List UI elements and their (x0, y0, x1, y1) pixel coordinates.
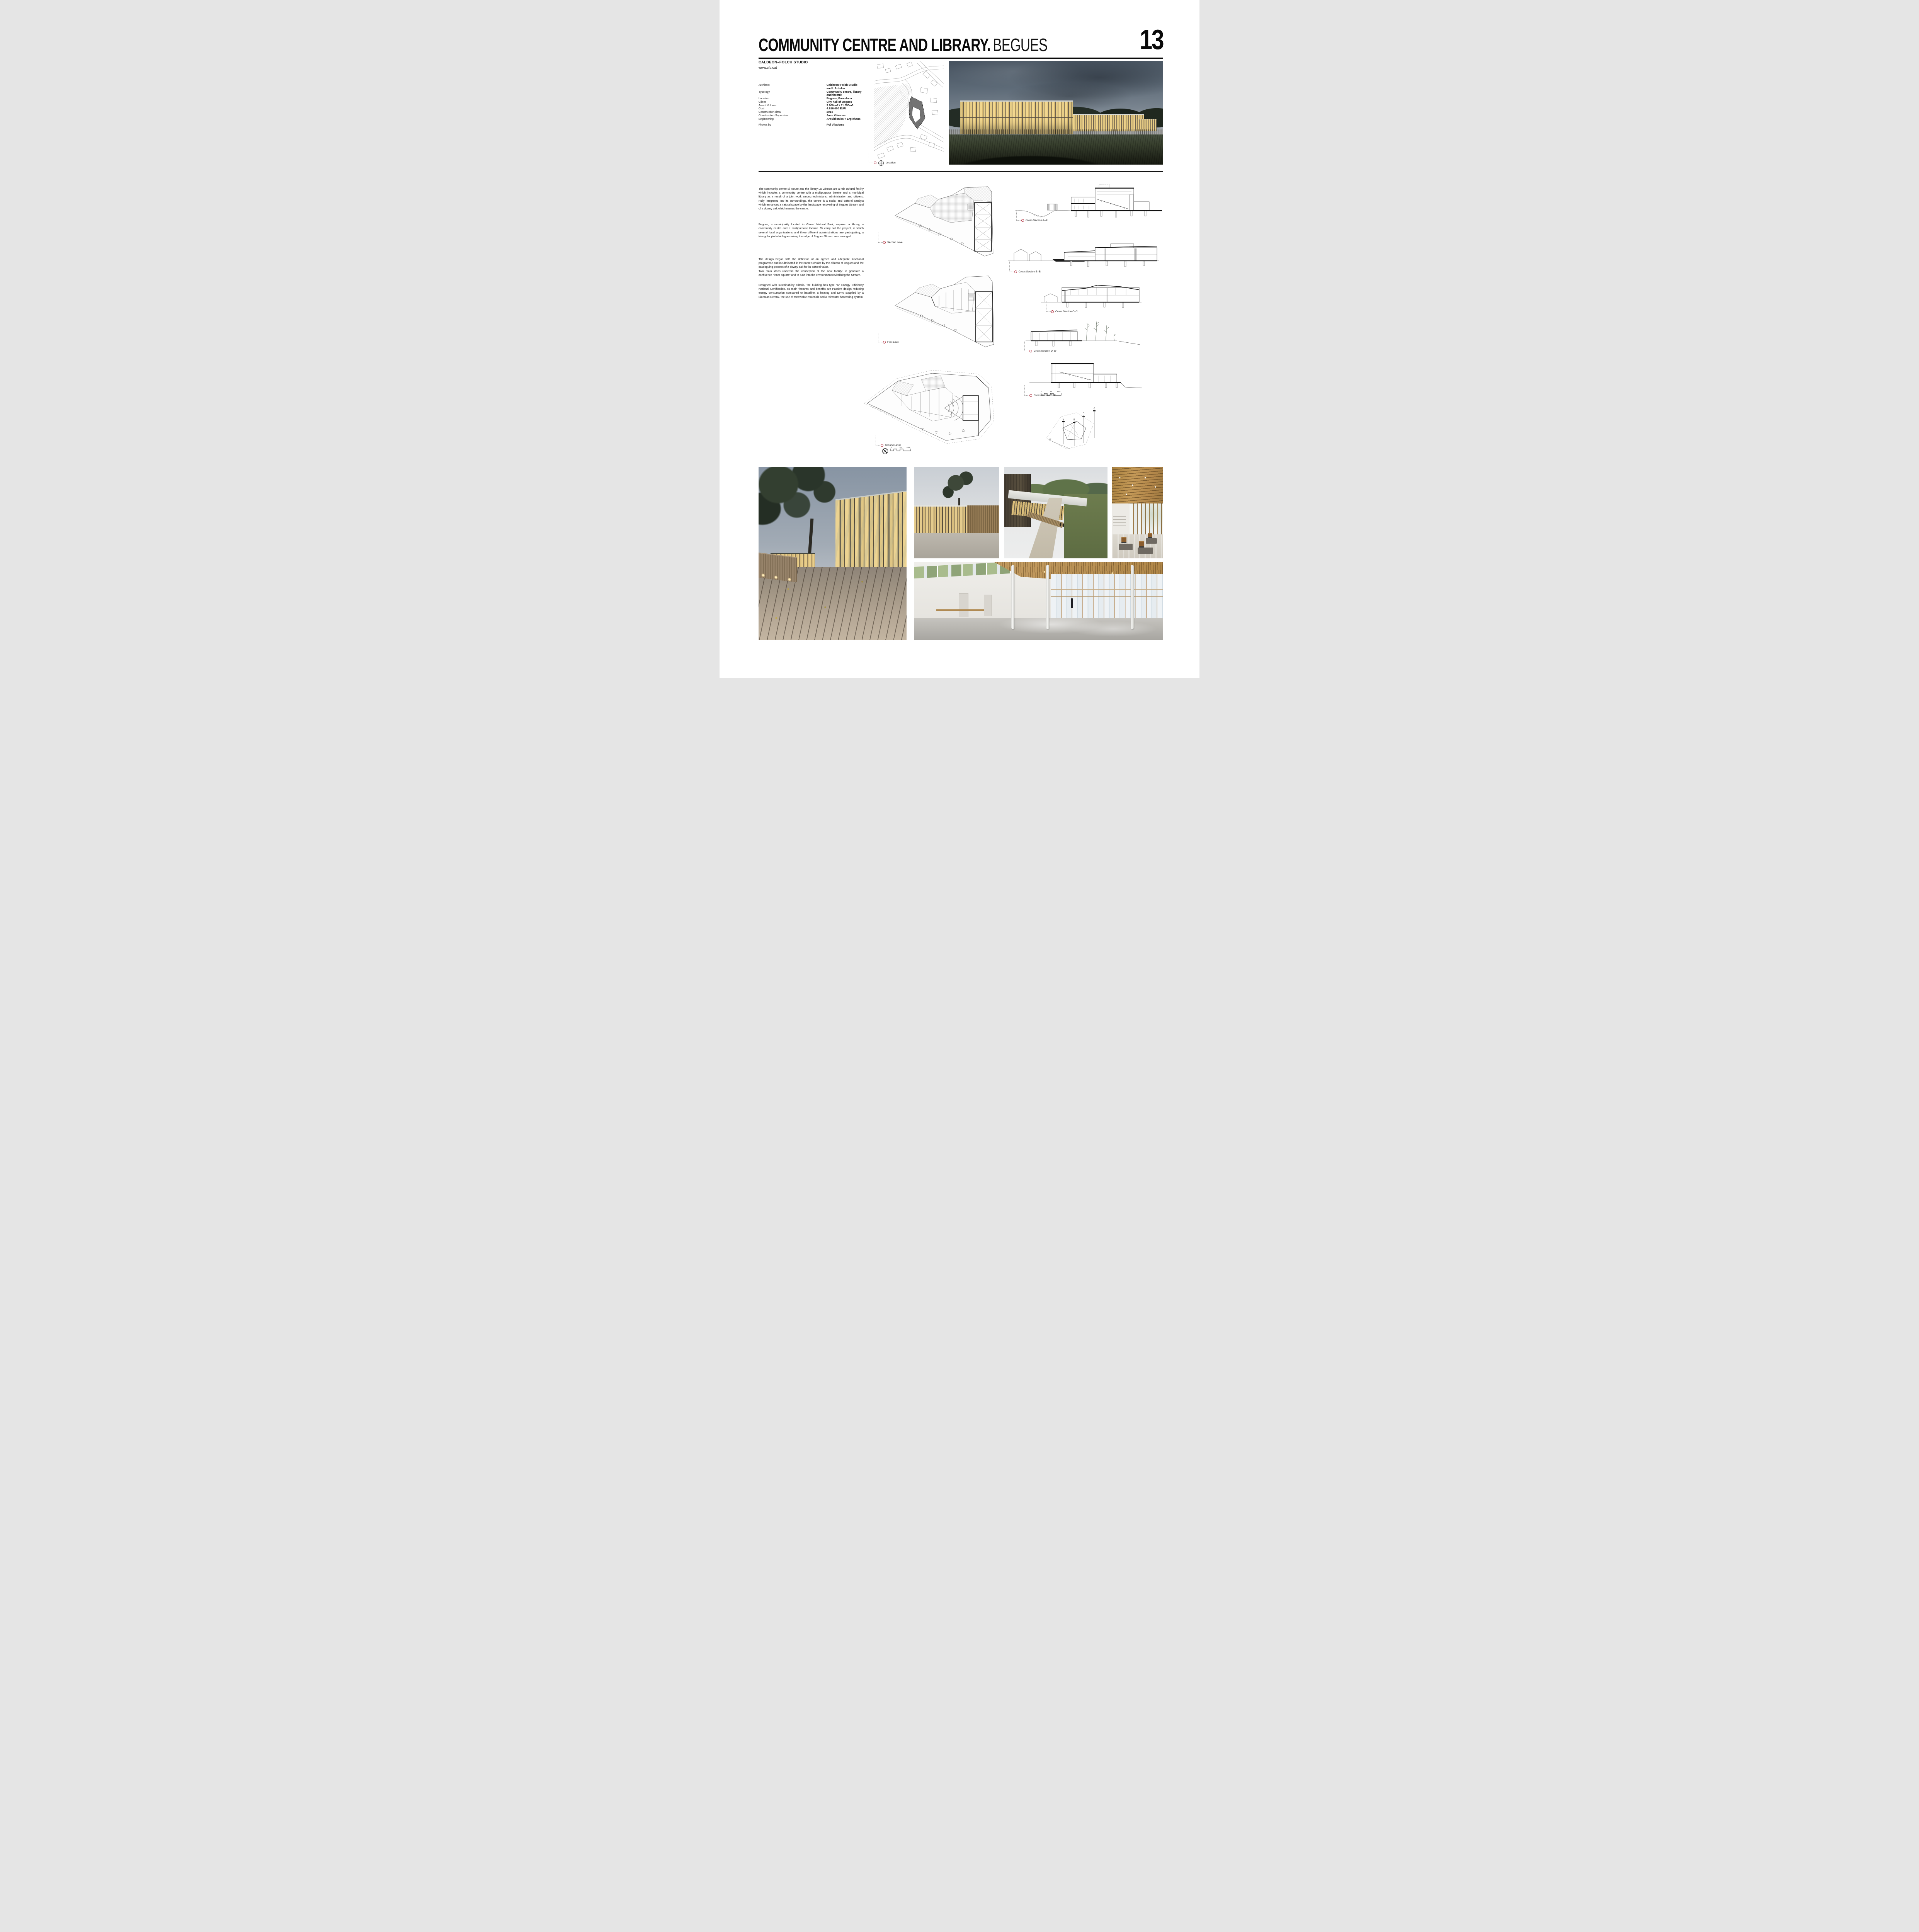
hero-meadow (949, 134, 1163, 165)
info-row: EngineeringArquitècnics + Ergiehaus (759, 117, 861, 121)
project-info-table: ArchitectCalderon–Folch Studio and I. Ar… (759, 83, 861, 127)
section-key-plan: A B C D E' (1039, 401, 1103, 455)
window-wall (1130, 500, 1163, 536)
label-cross-section-aa: Cross Section A–A' (1021, 219, 1048, 222)
translucent-partition (1051, 574, 1163, 621)
project-description: The community centre El Roure and the li… (759, 187, 864, 299)
info-row: Photos byPol Viladoms (759, 123, 861, 127)
white-wall (1112, 500, 1131, 536)
wooden-chair (1148, 533, 1152, 538)
label-cross-section-bb: Cross Section B–B' (1014, 270, 1041, 274)
info-row: TypologyCommunity centre, library (759, 90, 861, 94)
svg-text:A: A (1094, 407, 1095, 410)
red-ring-marker (1029, 394, 1032, 397)
timber-screen (967, 505, 999, 533)
concrete-floor (914, 618, 1163, 640)
scale-bar: 0 20 40m (1041, 390, 1062, 397)
photo-ramp-aerial (1004, 467, 1108, 558)
label-first-level: First Level (883, 340, 899, 344)
svg-text:20: 20 (1050, 391, 1052, 393)
person (1071, 598, 1073, 608)
bench (936, 609, 984, 611)
red-ring-marker (1021, 219, 1024, 222)
hero-photo-dusk-exterior (949, 61, 1163, 165)
hero-building-wing (1073, 114, 1144, 131)
photo-courtyard-tree (914, 467, 999, 558)
info-row: ArchitectCalderon–Folch Studio (759, 83, 861, 87)
photo-library-interior (1112, 467, 1163, 558)
wood-slat-ceiling (1112, 467, 1163, 503)
paragraph: Begues, a municipality located in Garraf… (759, 223, 864, 238)
north-compass-icon (878, 160, 884, 166)
poster-page: COMMUNITY CENTRE AND LIBRARY.BEGUES 13 C… (720, 0, 1199, 678)
section-bb-drawing (1006, 231, 1163, 269)
svg-text:0: 0 (1041, 391, 1042, 393)
label-cross-section-dd: Cross Section D–D' (1029, 349, 1056, 353)
red-ring-marker (874, 162, 876, 164)
red-ring-marker (1014, 270, 1017, 273)
title-main: COMMUNITY CENTRE AND LIBRARY. (759, 35, 990, 55)
floor-mat (1119, 544, 1132, 550)
section-dd-drawing (1024, 316, 1142, 349)
paragraph: The community centre El Roure and the li… (759, 187, 864, 211)
hero-building-main (960, 100, 1073, 134)
floor-mat (1146, 538, 1157, 544)
door (959, 593, 968, 617)
photo-hall-interior (914, 562, 1163, 640)
floor-mat (1138, 548, 1153, 554)
info-row: Area / Volume3.900 m2 / 11.050m3 (759, 104, 861, 107)
wooden-chair (1121, 537, 1126, 543)
person (1063, 524, 1064, 527)
column (1046, 565, 1049, 629)
label-location: Location (874, 161, 896, 165)
column (1011, 565, 1014, 629)
svg-text:C: C (1063, 418, 1065, 420)
svg-text:40m: 40m (1057, 391, 1060, 393)
studio-website: www.cfs.cat (759, 66, 777, 70)
label-second-level: Second Level (883, 241, 903, 244)
paragraph: Designed with sustainability criteria, t… (759, 283, 864, 299)
paragraph: Two main ideas underpin the conception o… (759, 269, 864, 277)
door (984, 595, 992, 617)
svg-text:40m: 40m (907, 446, 910, 449)
scale-bar: 0 20 40m (890, 446, 912, 453)
section-divider-rule (759, 171, 1163, 172)
red-ring-marker (1029, 350, 1032, 352)
red-ring-marker (883, 241, 886, 244)
title-rule (759, 58, 1163, 59)
section-ee-drawing (1028, 360, 1144, 391)
leader-line (869, 153, 873, 163)
north-compass-icon (882, 448, 888, 454)
plan-first-level-drawing (893, 272, 1009, 354)
person (1060, 523, 1061, 526)
wooden-chair (1139, 541, 1144, 548)
section-aa-drawing (1013, 183, 1164, 219)
section-cc-drawing (1039, 278, 1144, 309)
site-location-map (874, 61, 944, 161)
red-ring-marker (883, 341, 886, 344)
photo-boardwalk-dusk (759, 467, 907, 640)
page-title: COMMUNITY CENTRE AND LIBRARY.BEGUES (759, 36, 1138, 54)
column (1131, 565, 1134, 629)
label-cross-section-cc: Cross Section C–C' (1051, 310, 1078, 313)
red-ring-marker (881, 444, 883, 447)
title-city: BEGUES (993, 35, 1047, 55)
plan-second-level-drawing (893, 185, 1009, 262)
timber-tower (1004, 474, 1031, 527)
concrete-ground (914, 533, 999, 558)
sheet-number: 13 (1140, 24, 1163, 56)
svg-text:E': E' (1049, 439, 1051, 441)
studio-name: CALDEON–FOLCH STUDIO (759, 60, 808, 65)
plan-ground-level-drawing (863, 363, 999, 446)
svg-text:D: D (1083, 413, 1085, 415)
svg-text:B: B (1073, 419, 1075, 421)
red-ring-marker (1051, 310, 1054, 313)
svg-text:0: 0 (891, 446, 892, 449)
wooden-fence (759, 553, 797, 582)
paragraph: The design began with the definition of … (759, 257, 864, 269)
svg-text:20: 20 (900, 446, 902, 449)
